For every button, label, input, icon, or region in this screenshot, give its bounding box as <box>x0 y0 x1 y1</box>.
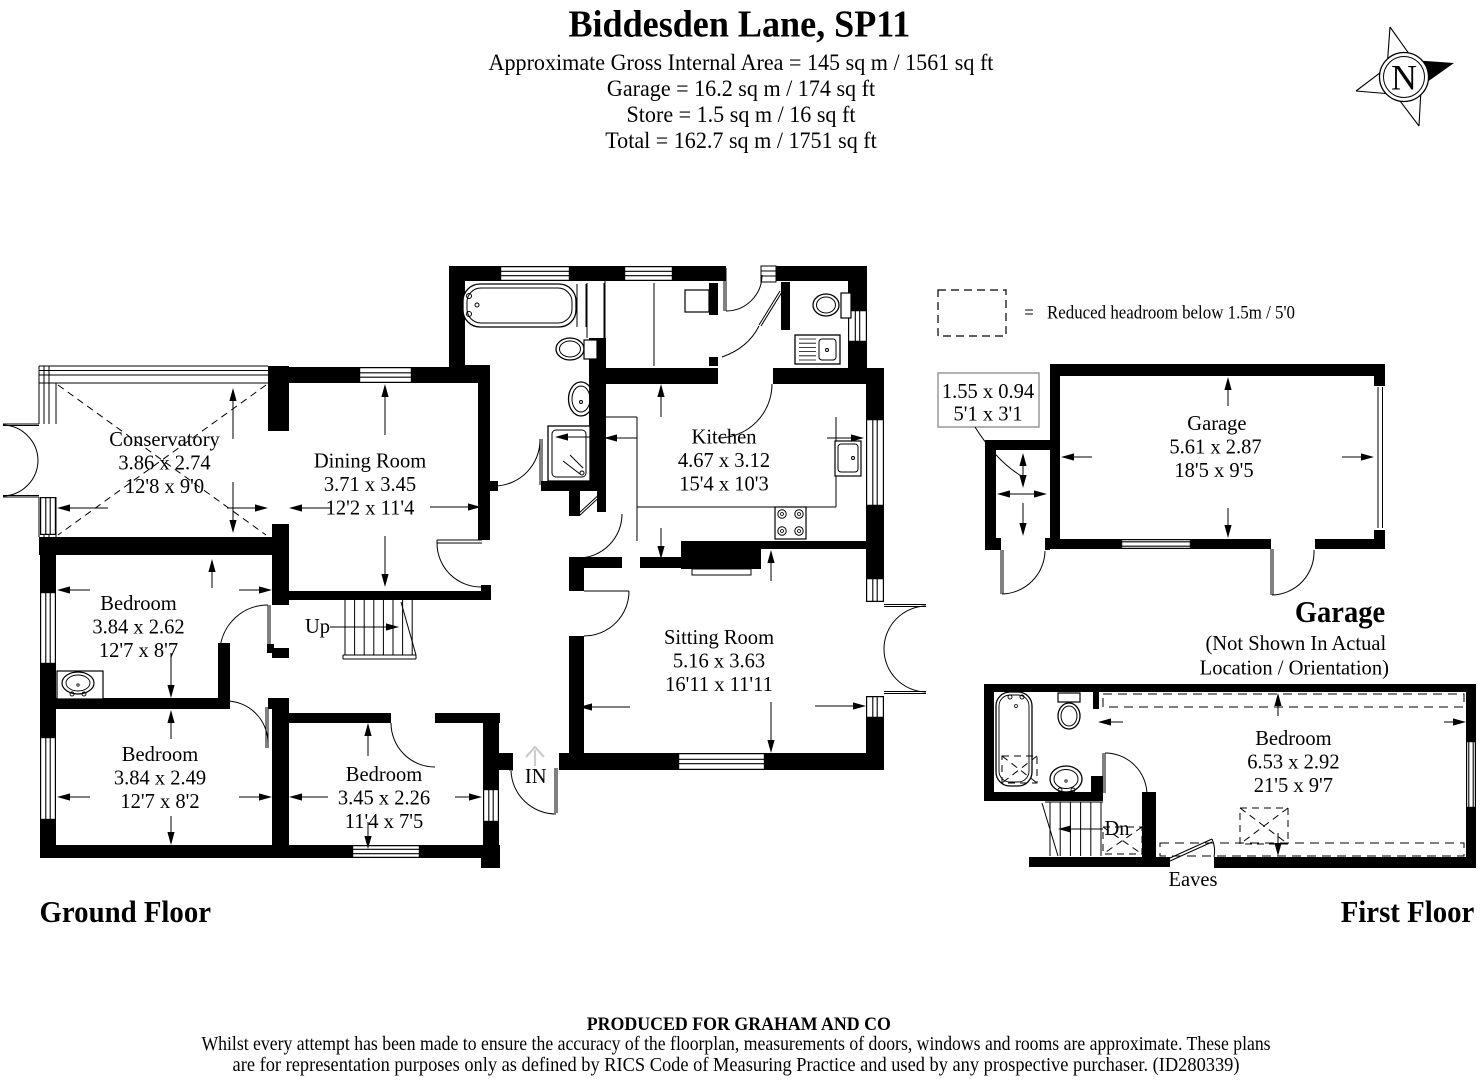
svg-text:18'5 x 9'5: 18'5 x 9'5 <box>1174 458 1253 483</box>
svg-text:=: = <box>1024 302 1034 323</box>
svg-text:Store = 1.5 sq m / 16 sq ft: Store = 1.5 sq m / 16 sq ft <box>627 101 857 127</box>
svg-text:3.45 x 2.26: 3.45 x 2.26 <box>338 785 430 810</box>
svg-text:15'4 x 10'3: 15'4 x 10'3 <box>679 471 769 496</box>
svg-text:Bedroom: Bedroom <box>122 742 199 767</box>
svg-text:12'7 x 8'7: 12'7 x 8'7 <box>99 638 178 663</box>
svg-text:Dn: Dn <box>1104 816 1130 841</box>
svg-text:5.61 x 2.87: 5.61 x 2.87 <box>1169 434 1261 459</box>
svg-text:3.71 x 3.45: 3.71 x 3.45 <box>324 472 416 497</box>
svg-text:Kitchen: Kitchen <box>692 424 757 449</box>
svg-text:12'8 x 9'0: 12'8 x 9'0 <box>125 474 204 499</box>
svg-text:Bedroom: Bedroom <box>100 591 177 616</box>
svg-text:PRODUCED FOR GRAHAM AND CO: PRODUCED FOR GRAHAM AND CO <box>587 1014 891 1034</box>
svg-text:Garage = 16.2 sq m / 174 sq ft: Garage = 16.2 sq m / 174 sq ft <box>607 75 876 101</box>
svg-text:3.84 x 2.49: 3.84 x 2.49 <box>114 765 206 790</box>
svg-text:16'11 x 11'11: 16'11 x 11'11 <box>665 672 773 697</box>
svg-text:Bedroom: Bedroom <box>346 762 423 787</box>
svg-text:Ground Floor: Ground Floor <box>40 896 212 929</box>
svg-text:11'4 x 7'5: 11'4 x 7'5 <box>345 809 423 834</box>
svg-text:Garage: Garage <box>1187 411 1246 436</box>
svg-text:Reduced headroom below 1.5m /: Reduced headroom below 1.5m / 5'0 <box>1047 302 1295 323</box>
svg-text:3.86 x 2.74: 3.86 x 2.74 <box>118 450 211 475</box>
svg-text:are for representation purpose: are for representation purposes only as … <box>233 1054 1240 1076</box>
svg-text:Bedroom: Bedroom <box>1255 726 1332 751</box>
svg-text:Approximate Gross Internal Are: Approximate Gross Internal Area = 145 sq… <box>489 49 995 75</box>
svg-text:Biddesden Lane, SP11: Biddesden Lane, SP11 <box>568 4 910 46</box>
svg-text:Sitting Room: Sitting Room <box>664 625 775 650</box>
svg-text:Eaves: Eaves <box>1168 867 1217 892</box>
svg-text:Location / Orientation): Location / Orientation) <box>1200 655 1389 680</box>
svg-text:Whilst every attempt has been: Whilst every attempt has been made to en… <box>201 1033 1270 1055</box>
svg-text:5.16 x 3.63: 5.16 x 3.63 <box>673 648 765 673</box>
svg-text:1.55 x 0.94: 1.55 x 0.94 <box>942 379 1035 404</box>
svg-text:3.84 x 2.62: 3.84 x 2.62 <box>92 614 184 639</box>
svg-text:Garage: Garage <box>1295 595 1385 629</box>
svg-text:12'7 x 8'2: 12'7 x 8'2 <box>120 789 199 814</box>
svg-text:5'1 x 3'1: 5'1 x 3'1 <box>954 401 1023 426</box>
svg-text:Total = 162.7 sq m / 1751 sq f: Total = 162.7 sq m / 1751 sq ft <box>605 127 877 153</box>
svg-text:6.53 x 2.92: 6.53 x 2.92 <box>1247 749 1339 774</box>
svg-text:First Floor: First Floor <box>1341 896 1475 929</box>
svg-text:(Not Shown In Actual: (Not Shown In Actual <box>1205 631 1386 656</box>
svg-text:21'5 x 9'7: 21'5 x 9'7 <box>1254 773 1333 798</box>
svg-text:IN: IN <box>525 764 547 789</box>
svg-text:Conservatory: Conservatory <box>109 427 220 452</box>
svg-text:12'2 x 11'4: 12'2 x 11'4 <box>326 495 415 520</box>
svg-text:N: N <box>1391 58 1417 98</box>
svg-text:Dining Room: Dining Room <box>314 448 427 473</box>
svg-text:4.67 x 3.12: 4.67 x 3.12 <box>678 448 770 473</box>
svg-text:Up: Up <box>305 614 330 639</box>
